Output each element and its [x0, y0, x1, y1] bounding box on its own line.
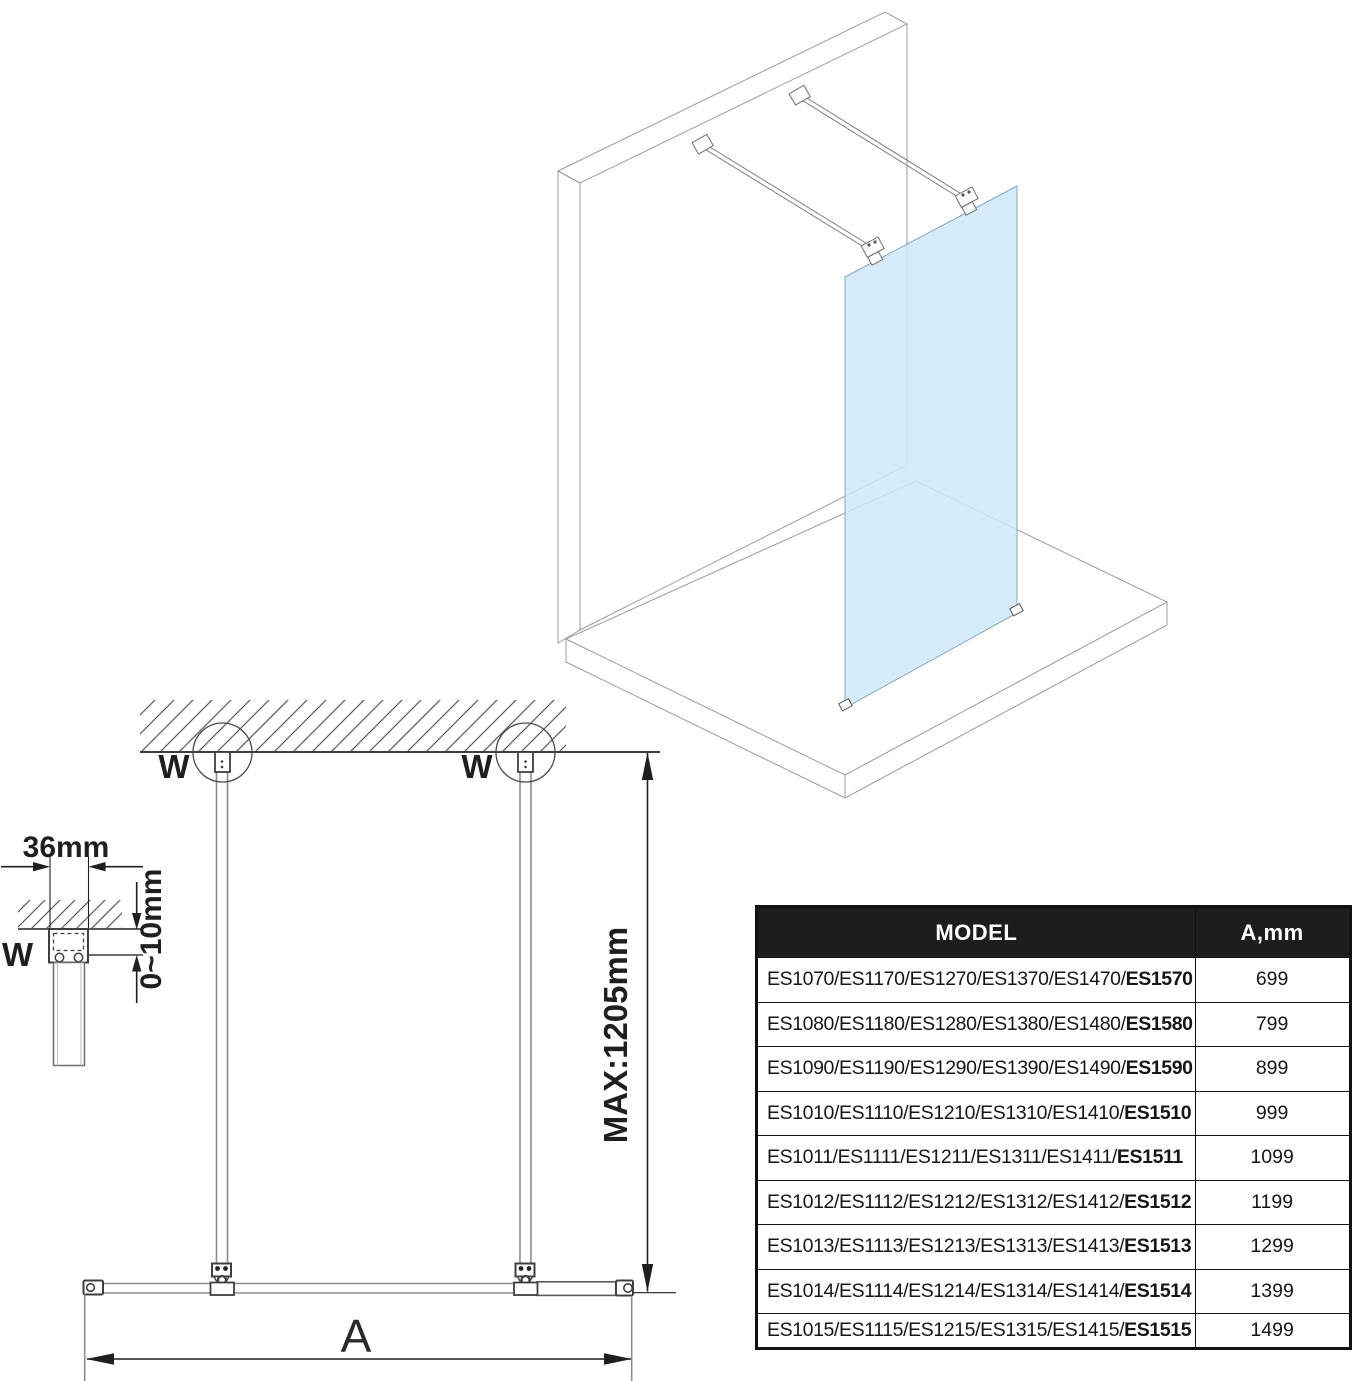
detail-bracket [49, 929, 88, 963]
cell-models: ES1014/ES1114/ES1214/ES1314/ES1414/ES151… [757, 1269, 1196, 1314]
label-w-detail: W [2, 936, 34, 973]
table-row: ES1011/ES1111/ES1211/ES1311/ES1411/ES151… [757, 1136, 1351, 1181]
cell-a-mm: 1199 [1195, 1180, 1350, 1225]
spec-sheet: W W [0, 0, 1353, 1381]
cell-models: ES1012/ES1112/ES1212/ES1312/ES1412/ES151… [757, 1180, 1196, 1225]
table-row: ES1010/ES1110/ES1210/ES1310/ES1410/ES151… [757, 1091, 1351, 1136]
wall-plate [692, 134, 713, 154]
dimension-0-10mm: 0~10mm [132, 869, 168, 1003]
wall-plate [789, 85, 810, 105]
label-a: A [341, 1310, 372, 1362]
detail-view: 36mm 0~10mm W [1, 831, 168, 1066]
table-row: ES1013/ES1113/ES1213/ES1313/ES1413/ES151… [757, 1225, 1351, 1270]
support-bar-front [692, 134, 884, 265]
dimension-a: A [86, 1310, 632, 1365]
bottom-bar [84, 1264, 634, 1296]
detail-bar [54, 963, 85, 1066]
cell-a-mm: 1399 [1195, 1269, 1350, 1314]
cell-a-mm: 1099 [1195, 1136, 1350, 1181]
cell-models: ES1070/ES1170/ES1270/ES1370/ES1470/ES157… [757, 958, 1196, 1003]
bar-clamp-left [211, 1264, 235, 1296]
label-w-left: W [158, 748, 190, 785]
bar-clamp-right [514, 1264, 538, 1296]
cell-a-mm: 999 [1195, 1091, 1350, 1136]
cell-models: ES1015/ES1115/ES1215/ES1315/ES1415/ES151… [757, 1314, 1196, 1349]
table-row: ES1012/ES1112/ES1212/ES1312/ES1412/ES151… [757, 1180, 1351, 1225]
wall-hatch [18, 900, 122, 928]
table-row: ES1080/ES1180/ES1280/ES1380/ES1480/ES158… [757, 1002, 1351, 1047]
table-row: ES1090/ES1190/ES1290/ES1390/ES1490/ES159… [757, 1047, 1351, 1092]
cell-models: ES1010/ES1110/ES1210/ES1310/ES1410/ES151… [757, 1091, 1196, 1136]
col-header-model: MODEL [757, 907, 1196, 958]
support-bar-right [518, 752, 533, 1264]
label-36mm: 36mm [23, 831, 110, 864]
table-header-row: MODEL A,mm [757, 907, 1351, 958]
dimension-max-height: MAX:1205mm [597, 753, 676, 1293]
cell-a-mm: 1499 [1195, 1314, 1350, 1349]
label-0-10mm: 0~10mm [135, 869, 168, 990]
front-view: W W [84, 700, 661, 1381]
cell-a-mm: 699 [1195, 958, 1350, 1003]
cell-models: ES1080/ES1180/ES1280/ES1380/ES1480/ES158… [757, 1002, 1196, 1047]
cell-a-mm: 899 [1195, 1047, 1350, 1092]
table-row: ES1014/ES1114/ES1214/ES1314/ES1414/ES151… [757, 1269, 1351, 1314]
cell-a-mm: 1299 [1195, 1225, 1350, 1270]
label-w-right: W [461, 748, 493, 785]
col-header-a-mm: A,mm [1195, 907, 1350, 958]
cell-models: ES1013/ES1113/ES1213/ES1313/ES1413/ES151… [757, 1225, 1196, 1270]
bar-outer-tube [537, 1282, 617, 1296]
support-bar-left [215, 752, 230, 1264]
table-row: ES1070/ES1170/ES1270/ES1370/ES1470/ES157… [757, 958, 1351, 1003]
ceiling-hatch [140, 700, 566, 752]
cell-a-mm: 799 [1195, 1002, 1350, 1047]
support-bar-back [789, 85, 978, 215]
cell-models: ES1011/ES1111/ES1211/ES1311/ES1411/ES151… [757, 1136, 1196, 1181]
size-table: MODEL A,mm ES1070/ES1170/ES1270/ES1370/E… [755, 905, 1352, 1350]
cell-models: ES1090/ES1190/ES1290/ES1390/ES1490/ES159… [757, 1047, 1196, 1092]
iso-view [558, 12, 1167, 798]
label-max-1205: MAX:1205mm [597, 927, 634, 1143]
table-row: ES1015/ES1115/ES1215/ES1315/ES1415/ES151… [757, 1314, 1351, 1349]
